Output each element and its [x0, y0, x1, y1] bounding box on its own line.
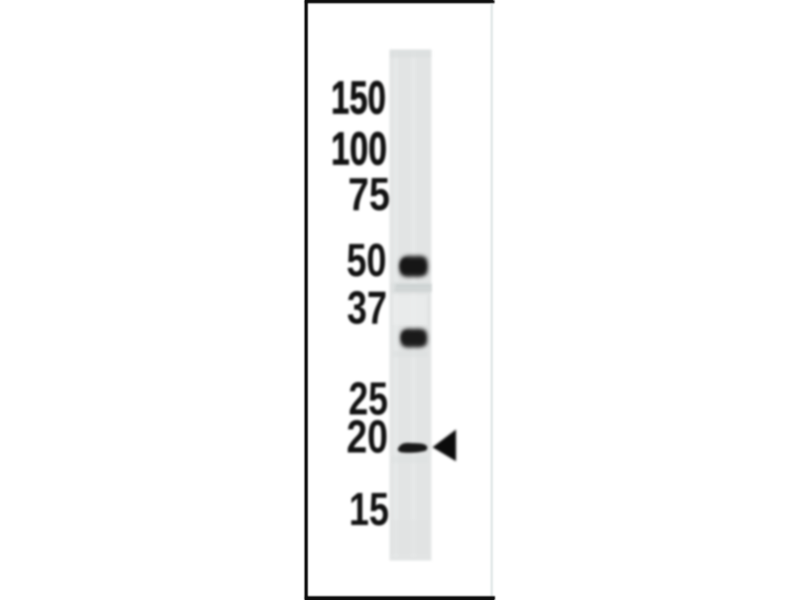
svg-text:150: 150: [331, 72, 386, 124]
svg-text:20: 20: [347, 410, 389, 462]
svg-text:100: 100: [331, 122, 387, 174]
svg-text:15: 15: [349, 483, 389, 535]
svg-text:37: 37: [347, 282, 387, 334]
svg-text:50: 50: [347, 234, 387, 286]
svg-text:75: 75: [348, 168, 390, 220]
